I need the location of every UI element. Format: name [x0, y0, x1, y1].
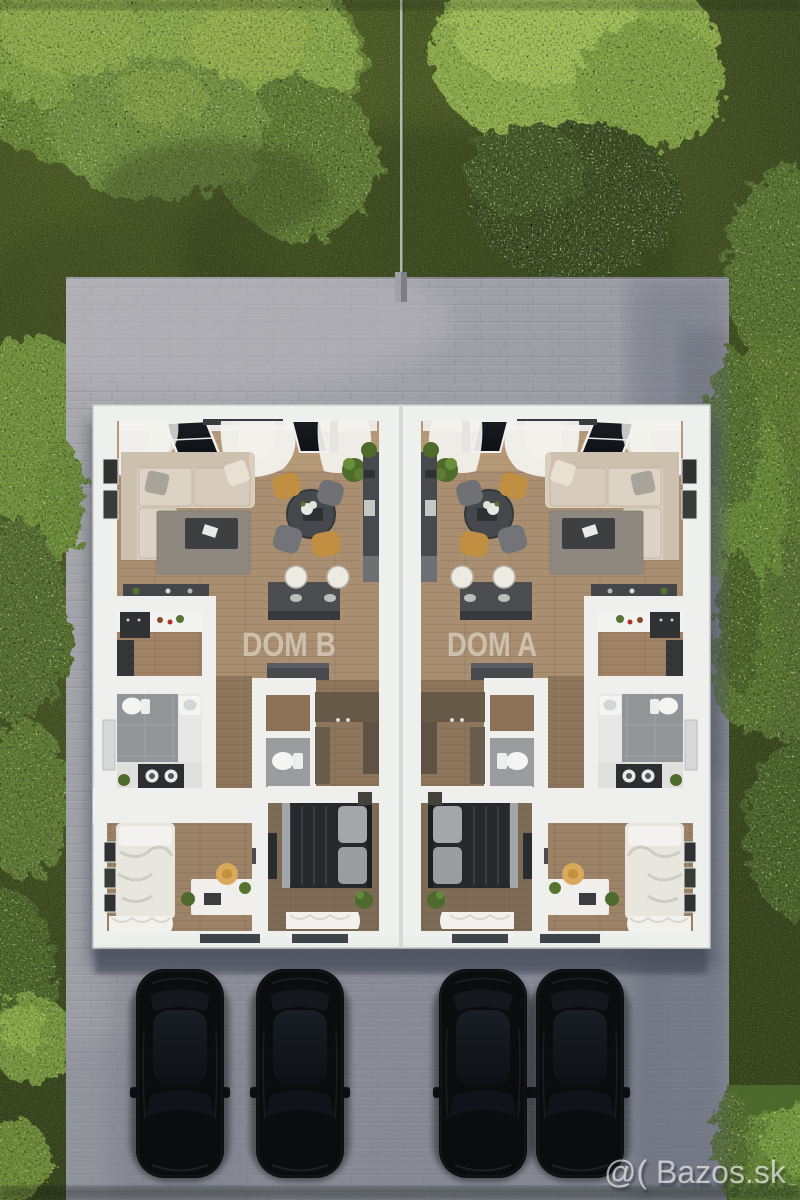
svg-text:DOM A: DOM A — [447, 626, 537, 664]
svg-text:DOM B: DOM B — [242, 626, 336, 664]
svg-text:@( Bazos.sk: @( Bazos.sk — [604, 1154, 787, 1190]
